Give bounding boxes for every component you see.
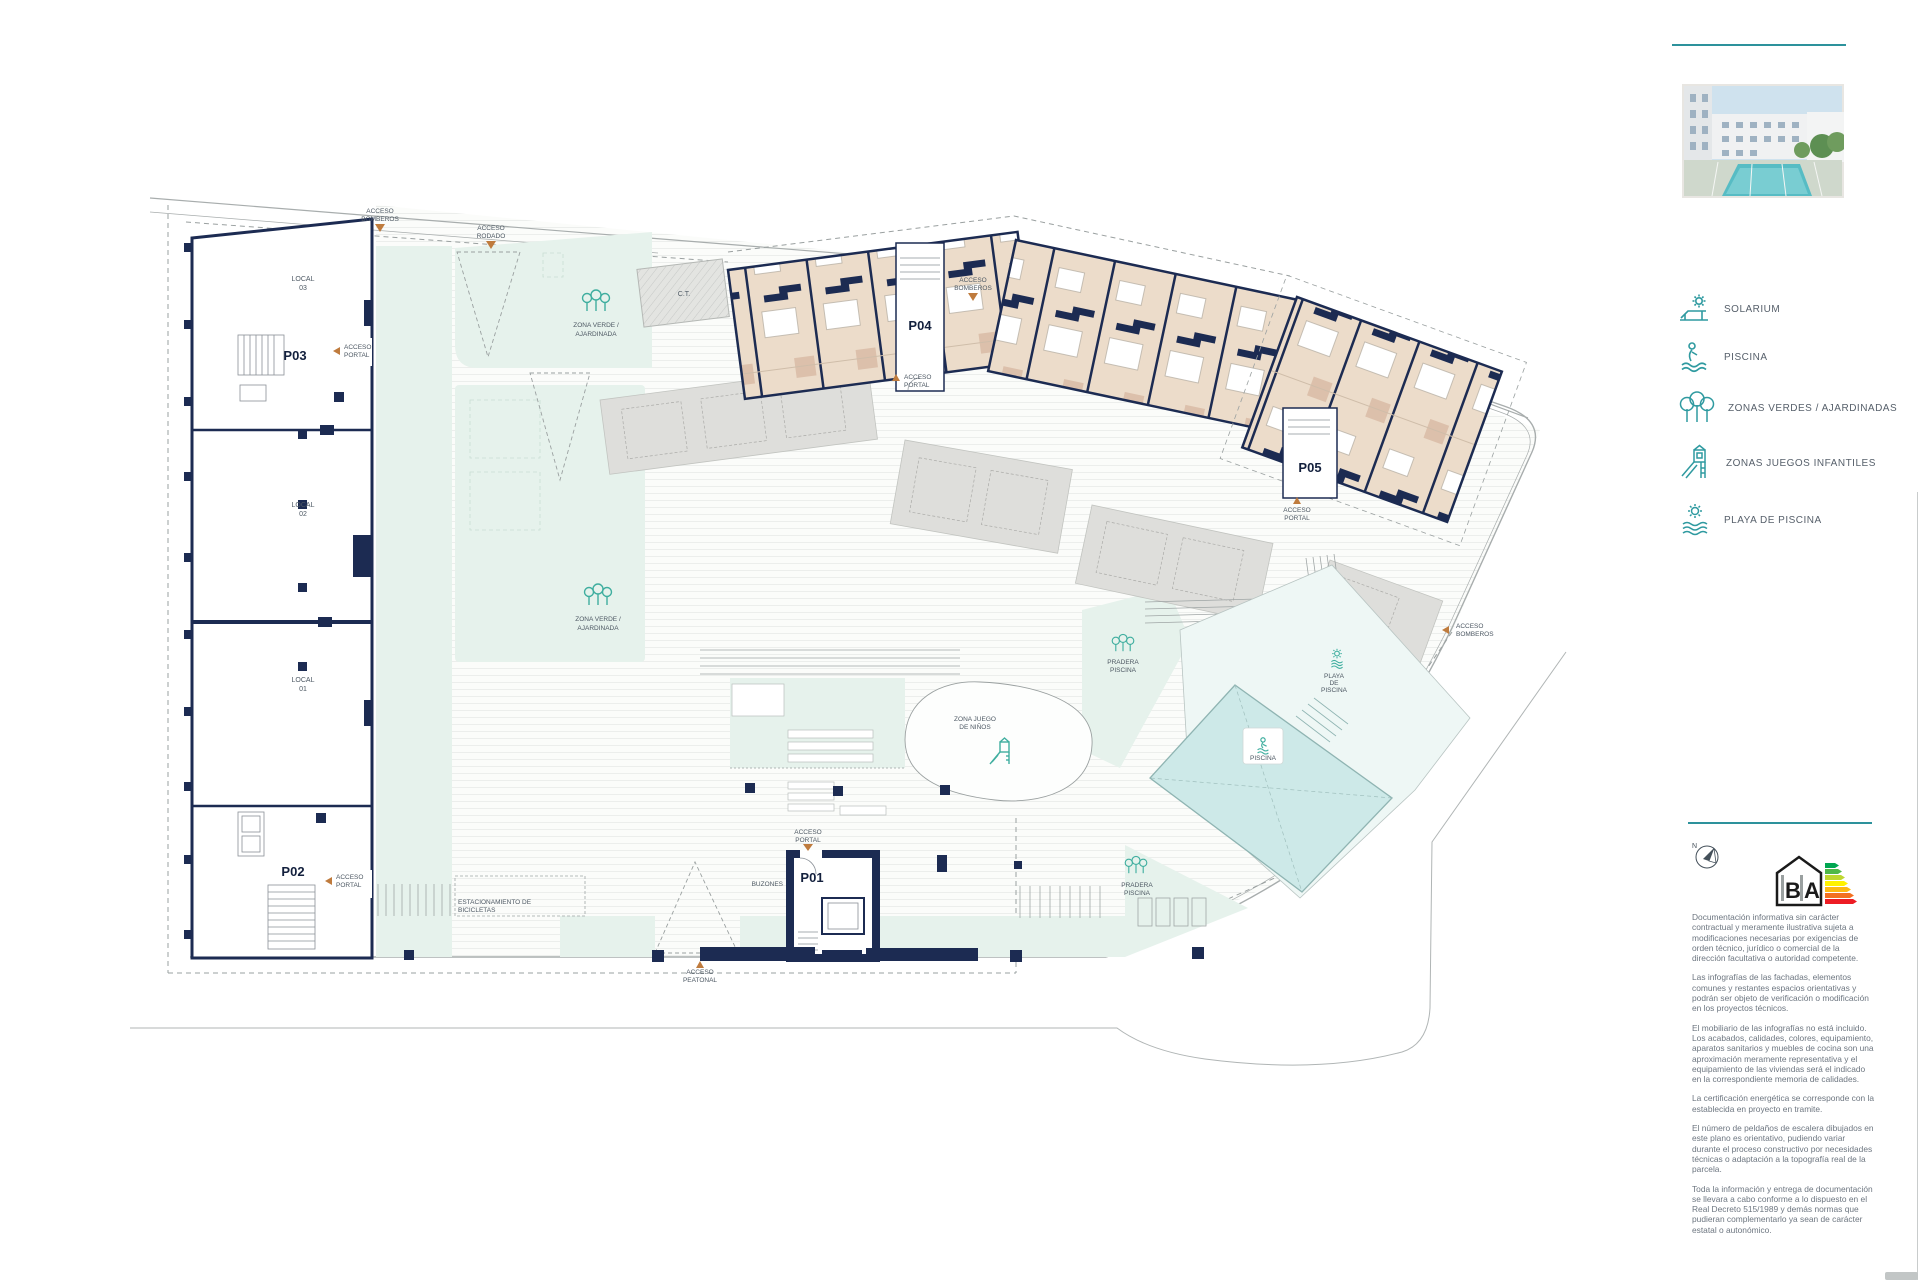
sidebar-top-rule bbox=[1672, 44, 1846, 46]
legend-item-solarium: SOLARIUM bbox=[1678, 292, 1780, 326]
acceso-portal-label: ACCESOPORTAL bbox=[344, 344, 371, 359]
portal-label-p03: P03 bbox=[283, 348, 306, 363]
pradera-piscina-label: PRADERAPISCINA bbox=[1107, 659, 1139, 674]
legend-label: ZONAS JUEGOS INFANTILES bbox=[1726, 458, 1876, 469]
portal-p01-block bbox=[786, 850, 880, 962]
buzones-label: BUZONES bbox=[752, 881, 784, 888]
portal-label-p04: P04 bbox=[908, 318, 932, 333]
acceso-bomberos-label: ACCESOBOMBEROS bbox=[1456, 623, 1494, 638]
legend-item-zonas-verdes: ZONAS VERDES / AJARDINADAS bbox=[1678, 388, 1897, 428]
zonas-verdes-icon bbox=[1678, 388, 1716, 428]
page-right-border bbox=[1917, 492, 1918, 1280]
legend-label: ZONAS VERDES / AJARDINADAS bbox=[1728, 403, 1897, 414]
north-compass-icon: N bbox=[1688, 838, 1724, 874]
compass-n-label: N bbox=[1692, 843, 1697, 850]
legend-item-juegos-infantiles: ZONAS JUEGOS INFANTILES bbox=[1678, 444, 1876, 482]
zona-juego-label: ZONA JUEGODE NIÑOS bbox=[954, 716, 996, 731]
acceso-portal-label: ACCESOPORTAL bbox=[904, 374, 931, 389]
legend-item-playa-piscina: PLAYA DE PISCINA bbox=[1678, 502, 1822, 538]
disclaimer-paragraph: Las infografías de las fachadas, element… bbox=[1692, 972, 1875, 1013]
energy-letter-b: B bbox=[1785, 878, 1801, 903]
legend-label: SOLARIUM bbox=[1724, 304, 1780, 315]
disclaimer-paragraph: El mobiliario de las infografías no está… bbox=[1692, 1023, 1875, 1085]
disclaimer-paragraph: El número de peldaños de escalera dibuja… bbox=[1692, 1123, 1875, 1174]
ct-label: C.T. bbox=[678, 291, 691, 298]
portal-label-p01: P01 bbox=[800, 870, 823, 885]
disclaimer-paragraph: Toda la información y entrega de documen… bbox=[1692, 1184, 1875, 1235]
acceso-rodado-label: ACCESORODADO bbox=[477, 225, 506, 240]
solarium-icon bbox=[1678, 292, 1712, 326]
acceso-peatonal-label: ACCESOPEATONAL bbox=[683, 969, 717, 984]
pradera-piscina-label: PRADERAPISCINA bbox=[1121, 882, 1153, 897]
portal-p04 bbox=[896, 243, 944, 391]
acceso-portal-label: ACCESOPORTAL bbox=[794, 829, 821, 844]
energy-certificate-icon: B A bbox=[1773, 853, 1863, 911]
legend-label: PISCINA bbox=[1724, 352, 1768, 363]
playa-piscina-icon bbox=[1678, 502, 1712, 538]
acceso-bomberos-label: ACCESOBOMBEROS bbox=[954, 277, 992, 292]
acceso-bomberos-label: ACCESOBOMBEROS bbox=[361, 208, 399, 223]
development-photo bbox=[1682, 84, 1844, 198]
piscina-label: PISCINA bbox=[1250, 755, 1277, 762]
disclaimer-text: Documentación informativa sin carácter c… bbox=[1692, 912, 1875, 1244]
energy-arrows bbox=[1825, 863, 1857, 904]
left-building bbox=[184, 219, 372, 958]
energy-letter-a: A bbox=[1804, 878, 1820, 903]
legend-label: PLAYA DE PISCINA bbox=[1724, 515, 1822, 526]
portal-label-p02: P02 bbox=[281, 864, 304, 879]
legend-item-piscina: PISCINA bbox=[1678, 340, 1768, 374]
portal-label-p05: P05 bbox=[1298, 460, 1321, 475]
portal-p05 bbox=[1283, 408, 1337, 498]
acceso-portal-label: ACCESOPORTAL bbox=[1283, 507, 1310, 522]
piscina-icon bbox=[1678, 340, 1712, 374]
site-plan-page: P03 P02 P01 P04 P05 LOCAL03 LOCAL02 LOCA… bbox=[0, 0, 1920, 1280]
juegos-infantiles-icon bbox=[1678, 444, 1714, 482]
disclaimer-paragraph: La certificación energética se correspon… bbox=[1692, 1093, 1875, 1114]
footer-mark bbox=[1885, 1272, 1918, 1280]
sidebar-bottom-rule bbox=[1688, 822, 1872, 824]
site-plan-drawing: P03 P02 P01 P04 P05 LOCAL03 LOCAL02 LOCA… bbox=[0, 0, 1920, 1280]
disclaimer-paragraph: Documentación informativa sin carácter c… bbox=[1692, 912, 1875, 963]
acceso-portal-label: ACCESOPORTAL bbox=[336, 874, 363, 889]
